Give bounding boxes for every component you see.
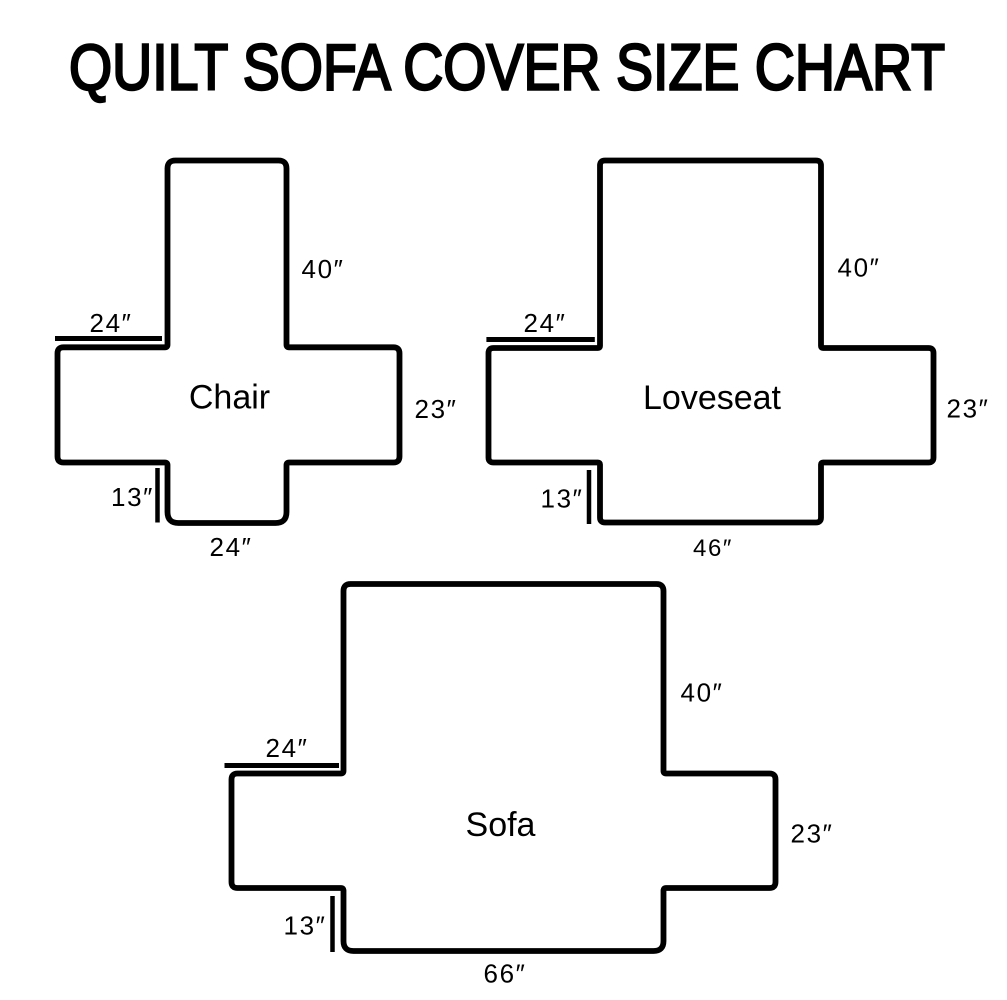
svg-text:Loveseat: Loveseat [643, 379, 782, 417]
svg-text:13″: 13″ [284, 911, 327, 941]
svg-text:Sofa: Sofa [466, 806, 536, 844]
svg-text:46″: 46″ [693, 535, 733, 562]
svg-text:24″: 24″ [210, 532, 253, 562]
svg-text:QUILT SOFA COVER SIZE CHART: QUILT SOFA COVER SIZE CHART [69, 32, 945, 104]
svg-text:66″: 66″ [484, 959, 527, 989]
svg-text:Chair: Chair [189, 379, 270, 417]
svg-text:23″: 23″ [415, 394, 458, 424]
svg-text:24″: 24″ [524, 308, 567, 338]
svg-text:23″: 23″ [947, 394, 990, 424]
svg-text:24″: 24″ [266, 733, 309, 763]
svg-text:40″: 40″ [681, 678, 724, 708]
svg-text:13″: 13″ [111, 482, 154, 512]
svg-text:24″: 24″ [90, 308, 133, 338]
svg-text:40″: 40″ [302, 254, 345, 284]
svg-text:23″: 23″ [791, 819, 834, 849]
svg-text:40″: 40″ [838, 253, 881, 283]
svg-text:13″: 13″ [541, 484, 584, 514]
